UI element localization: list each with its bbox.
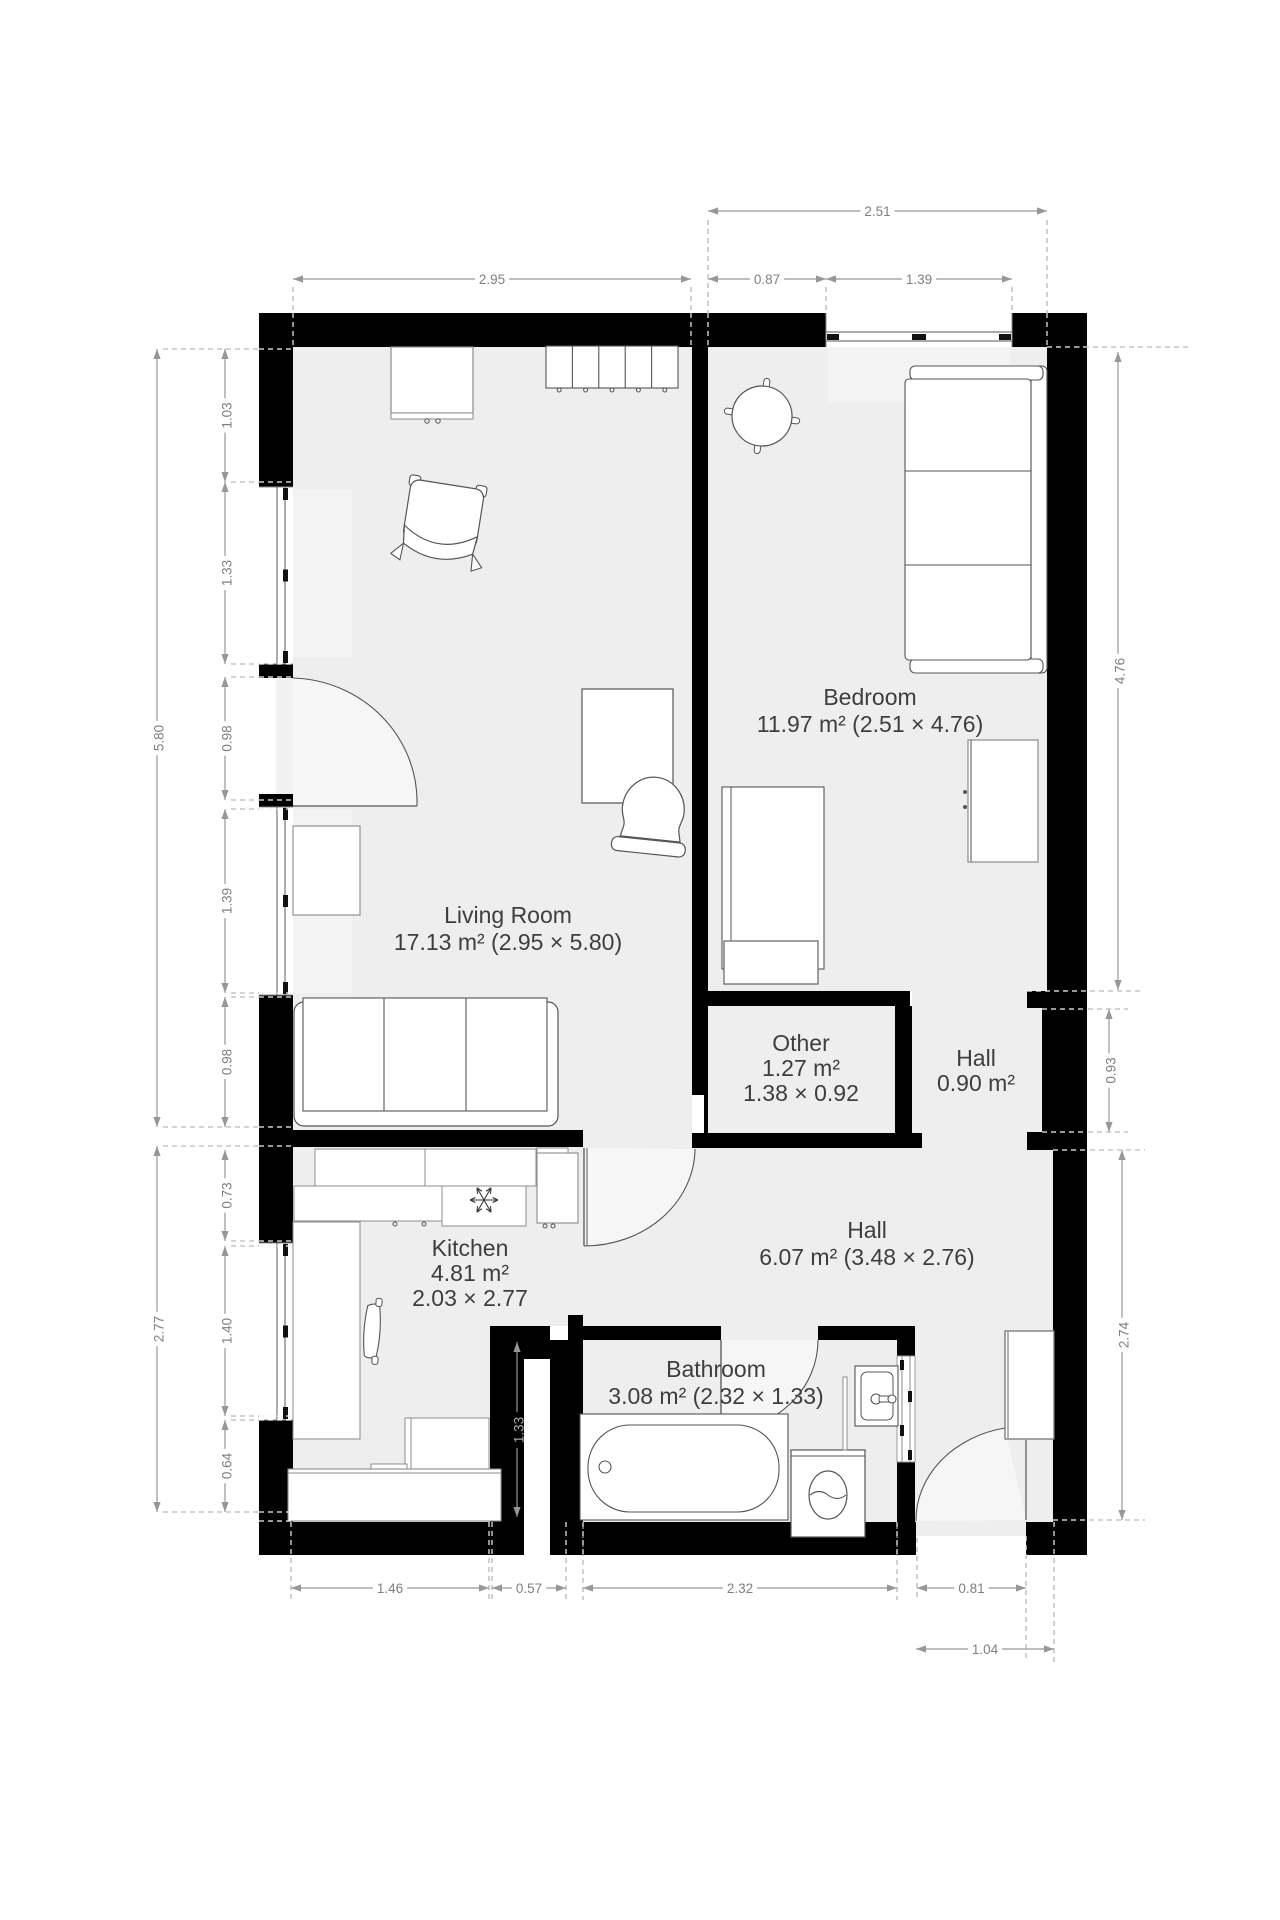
svg-text:Kitchen: Kitchen [432, 1235, 509, 1261]
svg-text:6.07 m² (3.48 × 2.76): 6.07 m² (3.48 × 2.76) [759, 1244, 974, 1270]
svg-text:5.80: 5.80 [151, 725, 166, 751]
svg-text:1.27 m²: 1.27 m² [762, 1055, 840, 1081]
svg-text:0.90 m²: 0.90 m² [937, 1070, 1015, 1096]
svg-text:4.76: 4.76 [1112, 658, 1127, 684]
svg-text:Hall: Hall [956, 1045, 996, 1071]
svg-text:1.33: 1.33 [219, 560, 234, 586]
svg-text:2.74: 2.74 [1116, 1321, 1131, 1348]
svg-text:Bedroom: Bedroom [823, 684, 916, 710]
svg-text:0.98: 0.98 [219, 1049, 234, 1075]
svg-text:2.51: 2.51 [864, 204, 890, 219]
svg-text:0.57: 0.57 [516, 1581, 542, 1596]
svg-text:2.03 × 2.77: 2.03 × 2.77 [412, 1285, 528, 1311]
svg-text:2.77: 2.77 [151, 1316, 166, 1342]
svg-text:1.39: 1.39 [906, 272, 932, 287]
svg-text:0.87: 0.87 [754, 272, 780, 287]
svg-text:11.97 m² (2.51 × 4.76): 11.97 m² (2.51 × 4.76) [757, 711, 984, 737]
svg-text:0.64: 0.64 [219, 1452, 234, 1479]
svg-text:1.33: 1.33 [511, 1417, 526, 1443]
svg-text:1.04: 1.04 [972, 1642, 999, 1657]
svg-text:3.08 m² (2.32 × 1.33): 3.08 m² (2.32 × 1.33) [608, 1383, 823, 1409]
svg-text:17.13 m² (2.95 × 5.80): 17.13 m² (2.95 × 5.80) [394, 929, 622, 955]
svg-text:4.81 m²: 4.81 m² [431, 1260, 509, 1286]
svg-text:Living Room: Living Room [444, 902, 572, 928]
svg-text:Other: Other [772, 1030, 830, 1056]
svg-text:1.38 × 0.92: 1.38 × 0.92 [743, 1080, 859, 1106]
svg-text:0.73: 0.73 [219, 1182, 234, 1208]
svg-text:2.32: 2.32 [727, 1581, 753, 1596]
svg-text:1.03: 1.03 [219, 402, 234, 428]
svg-text:0.93: 0.93 [1103, 1057, 1118, 1083]
svg-text:1.40: 1.40 [219, 1318, 234, 1344]
svg-text:2.95: 2.95 [479, 272, 505, 287]
svg-text:Hall: Hall [847, 1217, 887, 1243]
svg-text:1.46: 1.46 [377, 1581, 403, 1596]
svg-text:Bathroom: Bathroom [666, 1356, 766, 1382]
svg-text:1.39: 1.39 [219, 888, 234, 914]
svg-text:0.98: 0.98 [219, 725, 234, 751]
svg-text:0.81: 0.81 [958, 1581, 984, 1596]
